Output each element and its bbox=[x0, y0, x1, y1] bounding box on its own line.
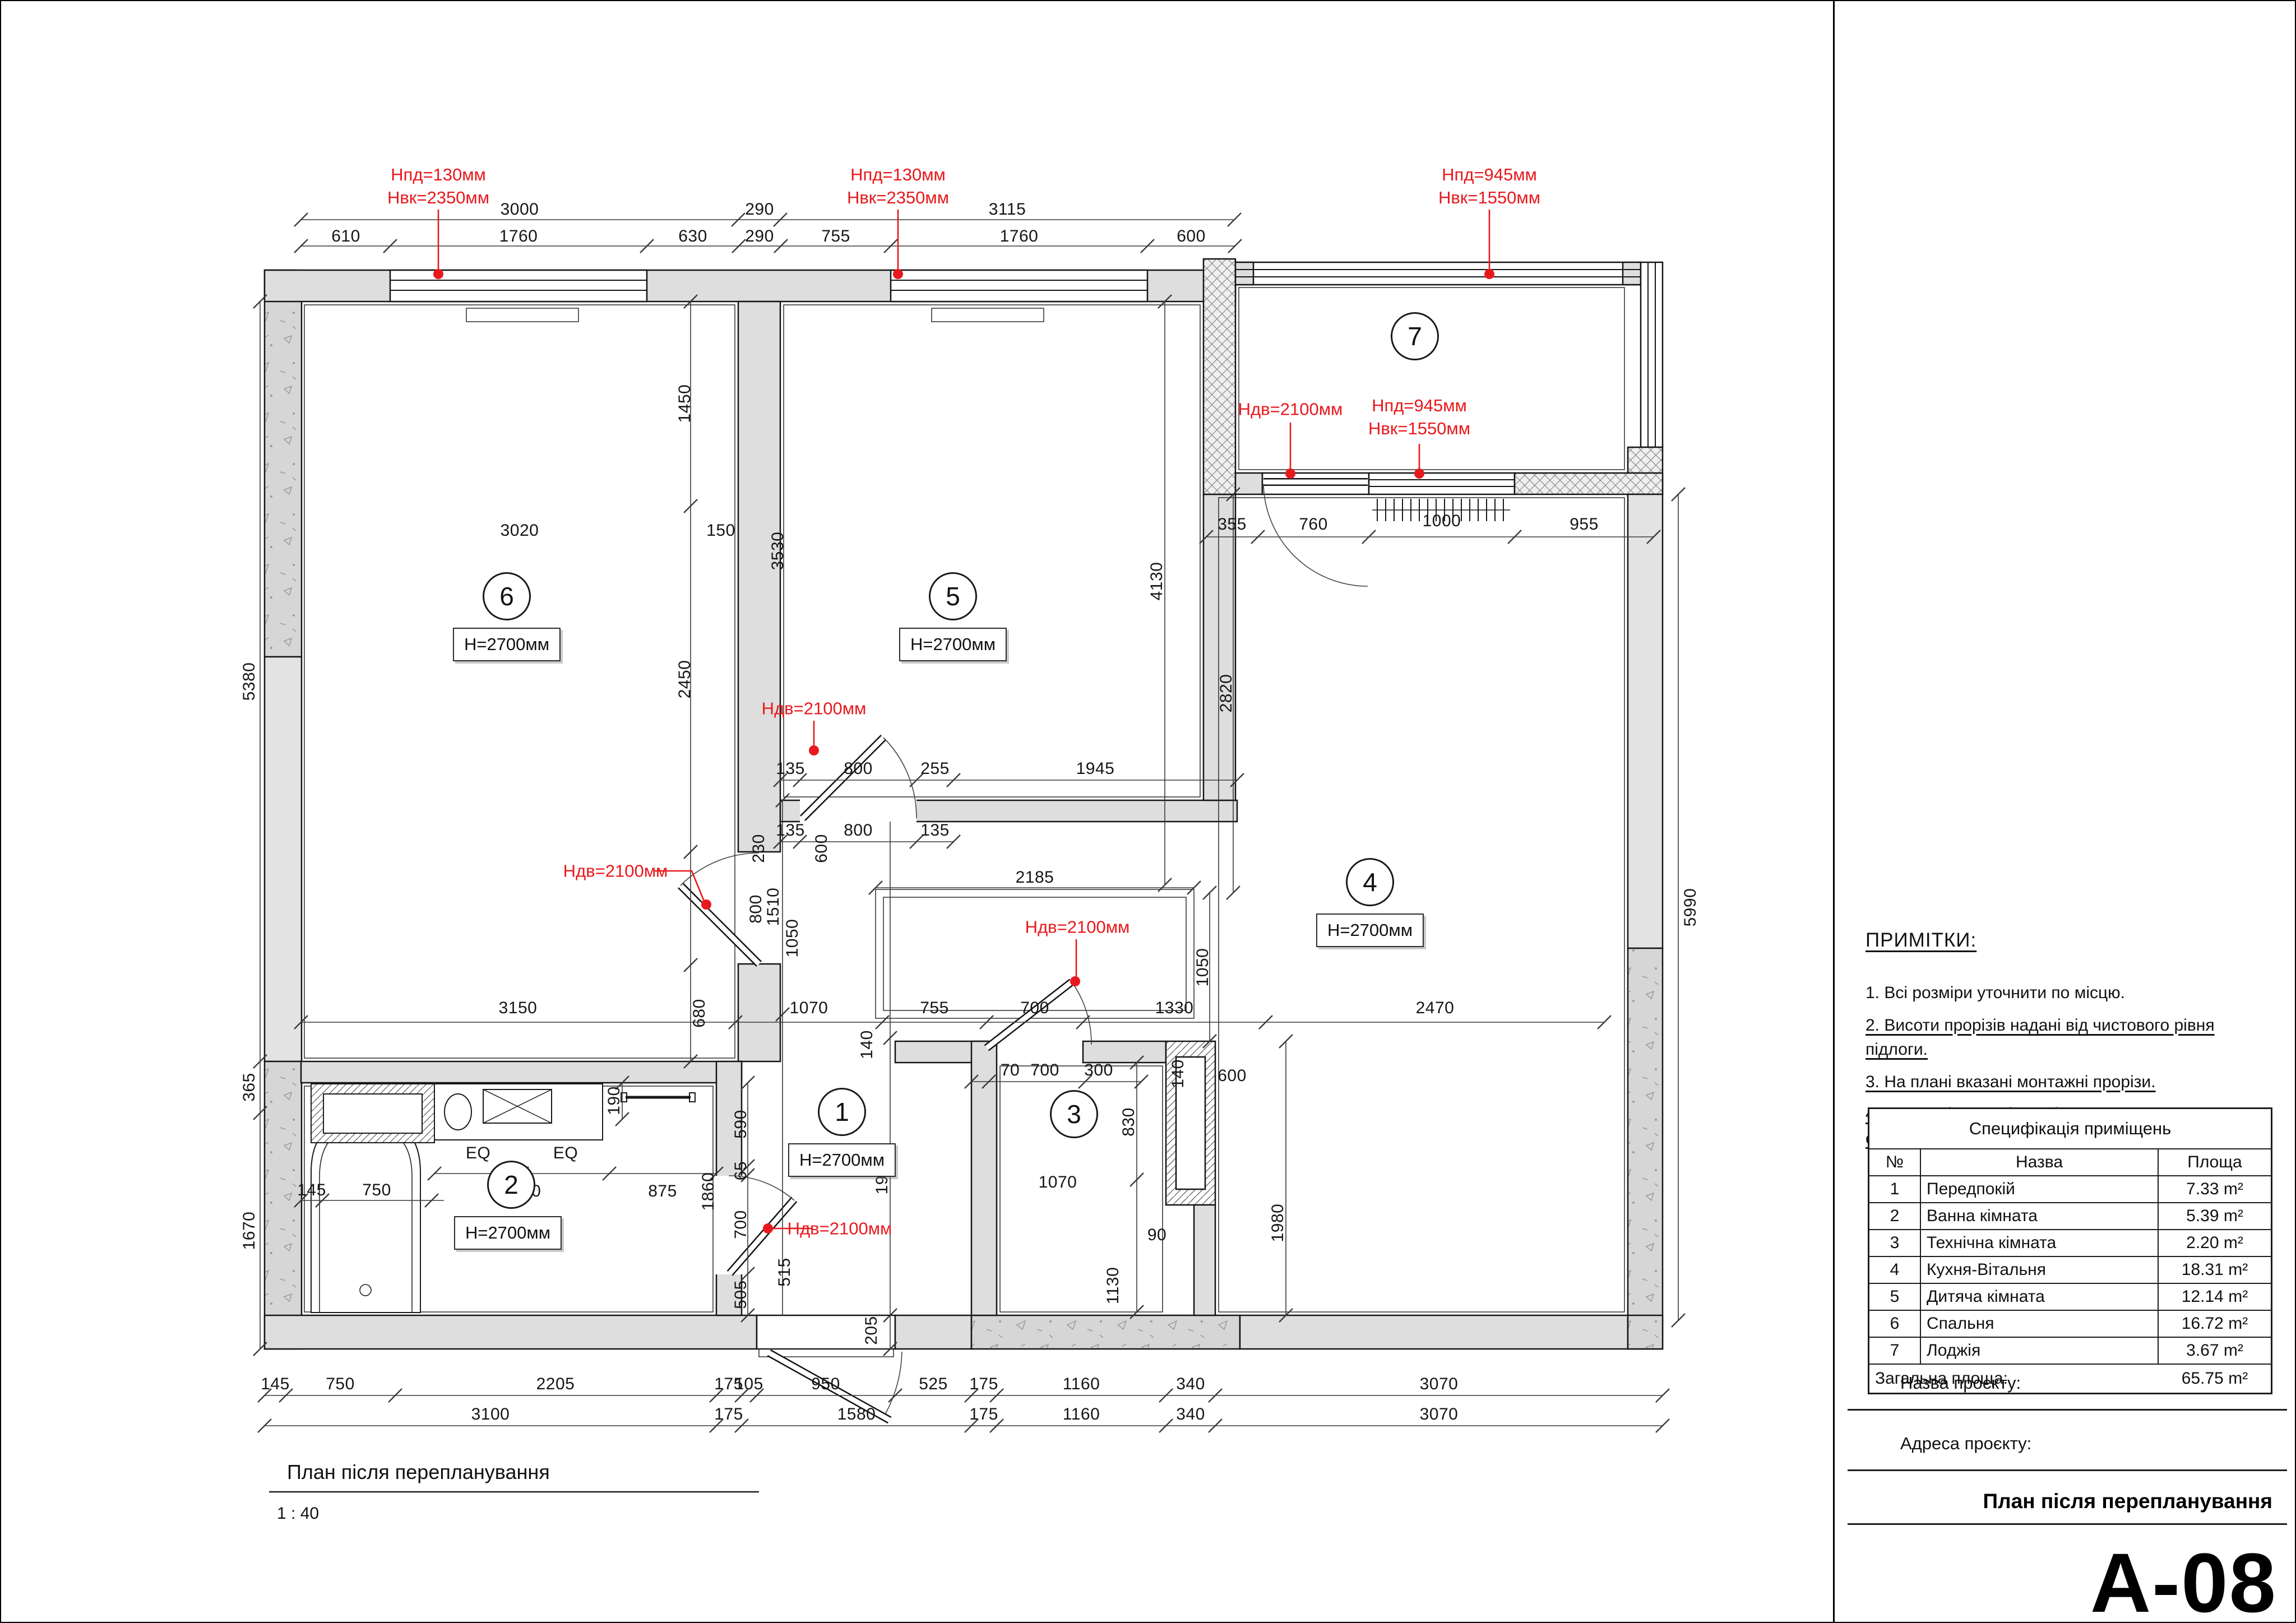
dimension-label: 290 bbox=[745, 200, 774, 219]
dimension-label: 230 bbox=[749, 834, 769, 863]
dimension-label: 1860 bbox=[699, 1172, 718, 1211]
dimension-label: 3000 bbox=[501, 200, 539, 219]
dimension-label: 1330 bbox=[1155, 999, 1194, 1018]
dimension-label: 1000 bbox=[1423, 512, 1461, 531]
dimension-label: 5990 bbox=[1681, 888, 1700, 927]
dimension-label: 135 bbox=[776, 821, 805, 840]
dimension-label: 800 bbox=[747, 894, 766, 924]
dimension-label: 800 bbox=[844, 821, 873, 840]
opening-height-annotation: Ндв=2100мм bbox=[762, 697, 867, 720]
dimension-label: 145 bbox=[261, 1375, 290, 1394]
dimension-label: 355 bbox=[1218, 515, 1247, 534]
dimension-label: 1510 bbox=[764, 888, 783, 926]
opening-height-annotation: Нпд=130ммНвк=2350мм bbox=[387, 163, 489, 209]
dimension-label: 65 bbox=[732, 1161, 751, 1180]
room-number-6: 6 bbox=[483, 572, 531, 620]
dimension-label: 610 bbox=[331, 227, 360, 246]
dimension-label: 2185 bbox=[1016, 868, 1054, 887]
room-number-4: 4 bbox=[1346, 858, 1394, 906]
room-height-label: H=2700мм bbox=[454, 1216, 562, 1250]
dimension-label: 205 bbox=[862, 1316, 881, 1345]
opening-height-annotation: Нпд=945ммНвк=1550мм bbox=[1438, 163, 1540, 209]
dimension-label: 515 bbox=[775, 1258, 794, 1287]
dimension-label: 105 bbox=[734, 1375, 763, 1394]
opening-height-annotation: Ндв=2100мм bbox=[788, 1217, 892, 1240]
room-number-7: 7 bbox=[1391, 312, 1439, 360]
opening-height-annotation: Ндв=2100мм bbox=[1025, 916, 1130, 939]
dimension-label: 1160 bbox=[1063, 1405, 1100, 1424]
opening-height-annotation: Нпд=945ммНвк=1550мм bbox=[1368, 394, 1470, 440]
dimension-label: 140 bbox=[858, 1030, 877, 1059]
dimension-label: 3070 bbox=[1420, 1405, 1459, 1424]
dimension-label: 755 bbox=[821, 227, 850, 246]
dimension-label: 90 bbox=[1147, 1226, 1166, 1245]
dimension-label: 700 bbox=[1020, 999, 1049, 1018]
dimension-label: 750 bbox=[326, 1375, 355, 1394]
dimension-label: 340 bbox=[1176, 1405, 1205, 1424]
dimension-label: 950 bbox=[811, 1375, 840, 1394]
room-height-label: H=2700мм bbox=[1316, 913, 1424, 947]
dimension-label: 1050 bbox=[1193, 948, 1212, 987]
dimension-label: 2470 bbox=[1416, 999, 1455, 1018]
dimension-label: 1050 bbox=[783, 919, 802, 958]
dimension-label: 300 bbox=[1084, 1061, 1113, 1080]
dimension-label: 680 bbox=[690, 999, 709, 1028]
room-number-3: 3 bbox=[1050, 1090, 1098, 1138]
dimension-label: 600 bbox=[1218, 1066, 1247, 1086]
dimension-label: 1980 bbox=[1269, 1204, 1288, 1242]
dimension-label: 1670 bbox=[240, 1212, 259, 1250]
room-number-1: 1 bbox=[818, 1088, 866, 1136]
opening-height-annotation: Ндв=2100мм bbox=[1238, 398, 1343, 421]
dimension-label: 2205 bbox=[536, 1375, 575, 1394]
dimension-label: 3115 bbox=[989, 200, 1026, 219]
room-number-5: 5 bbox=[929, 572, 977, 620]
dimension-label: 525 bbox=[919, 1375, 948, 1394]
dimension-label: 365 bbox=[240, 1073, 259, 1102]
dimension-label: 800 bbox=[844, 759, 873, 778]
opening-height-annotation: Нпд=130ммНвк=2350мм bbox=[847, 163, 949, 209]
dimension-label: 1450 bbox=[675, 384, 695, 423]
dimension-label: 140 bbox=[1169, 1059, 1188, 1088]
dimension-label: 2450 bbox=[675, 660, 695, 699]
dimension-label: 175 bbox=[969, 1375, 998, 1394]
dimension-label: 1760 bbox=[499, 227, 538, 246]
dimension-label: 175 bbox=[714, 1405, 743, 1424]
dimension-label: 1160 bbox=[1063, 1375, 1100, 1394]
dimension-label: 755 bbox=[920, 999, 949, 1018]
dimension-label: 150 bbox=[706, 521, 735, 540]
dimension-label: 590 bbox=[732, 1110, 751, 1139]
dimension-label: 760 bbox=[1299, 515, 1328, 534]
dimension-label: 830 bbox=[1119, 1107, 1138, 1137]
dimension-label: 3150 bbox=[499, 999, 538, 1018]
room-height-label: H=2700мм bbox=[788, 1143, 896, 1177]
dimension-label: 5380 bbox=[240, 662, 259, 701]
room-number-2: 2 bbox=[487, 1161, 535, 1209]
dimension-label: 135 bbox=[776, 759, 805, 778]
dimension-label: 1760 bbox=[1000, 227, 1039, 246]
dimension-label: 175 bbox=[969, 1405, 998, 1424]
dimension-label: 1580 bbox=[837, 1405, 876, 1424]
dimension-label: 1945 bbox=[1076, 759, 1115, 778]
dimension-label: 135 bbox=[920, 821, 950, 840]
dimension-label: 600 bbox=[1177, 227, 1206, 246]
dimension-label: 1070 bbox=[790, 999, 828, 1018]
drawing-sheet: 3000290311561017606302907551760600355760… bbox=[0, 0, 2296, 1623]
dimension-label: 1130 bbox=[1104, 1267, 1123, 1305]
dimension-label: 4130 bbox=[1147, 562, 1166, 601]
dimension-label: 700 bbox=[1030, 1061, 1059, 1080]
room-height-label: H=2700мм bbox=[899, 628, 1007, 661]
dimension-label: EQ bbox=[553, 1144, 578, 1163]
dimension-label: 1070 bbox=[1039, 1173, 1077, 1192]
dimension-label: 3020 bbox=[501, 521, 539, 540]
dimension-label: 750 bbox=[362, 1181, 391, 1200]
dimension-label: 700 bbox=[732, 1210, 751, 1239]
room-height-label: H=2700мм bbox=[453, 628, 561, 661]
dimension-label: 190 bbox=[605, 1086, 624, 1115]
dimension-label: 955 bbox=[1570, 515, 1599, 534]
dimension-label: 630 bbox=[678, 227, 707, 246]
dimension-label: 505 bbox=[732, 1280, 751, 1309]
dimension-label: 340 bbox=[1176, 1375, 1205, 1394]
dimension-label: 3070 bbox=[1420, 1375, 1459, 1394]
dimension-label: 70 bbox=[1001, 1061, 1020, 1080]
dimension-label: 3530 bbox=[769, 532, 788, 571]
dimension-label: 875 bbox=[648, 1182, 677, 1201]
opening-height-annotation: Ндв=2100мм bbox=[563, 860, 668, 883]
dimension-label: 290 bbox=[745, 227, 774, 246]
dimension-label: 2820 bbox=[1217, 674, 1236, 713]
plan-labels-overlay: 3000290311561017606302907551760600355760… bbox=[1, 1, 2296, 1623]
dimension-label: 600 bbox=[812, 834, 831, 863]
dimension-label: 3100 bbox=[471, 1405, 510, 1424]
dimension-label: EQ bbox=[466, 1144, 490, 1163]
dimension-label: 255 bbox=[920, 759, 950, 778]
dimension-label: 145 bbox=[297, 1181, 326, 1200]
